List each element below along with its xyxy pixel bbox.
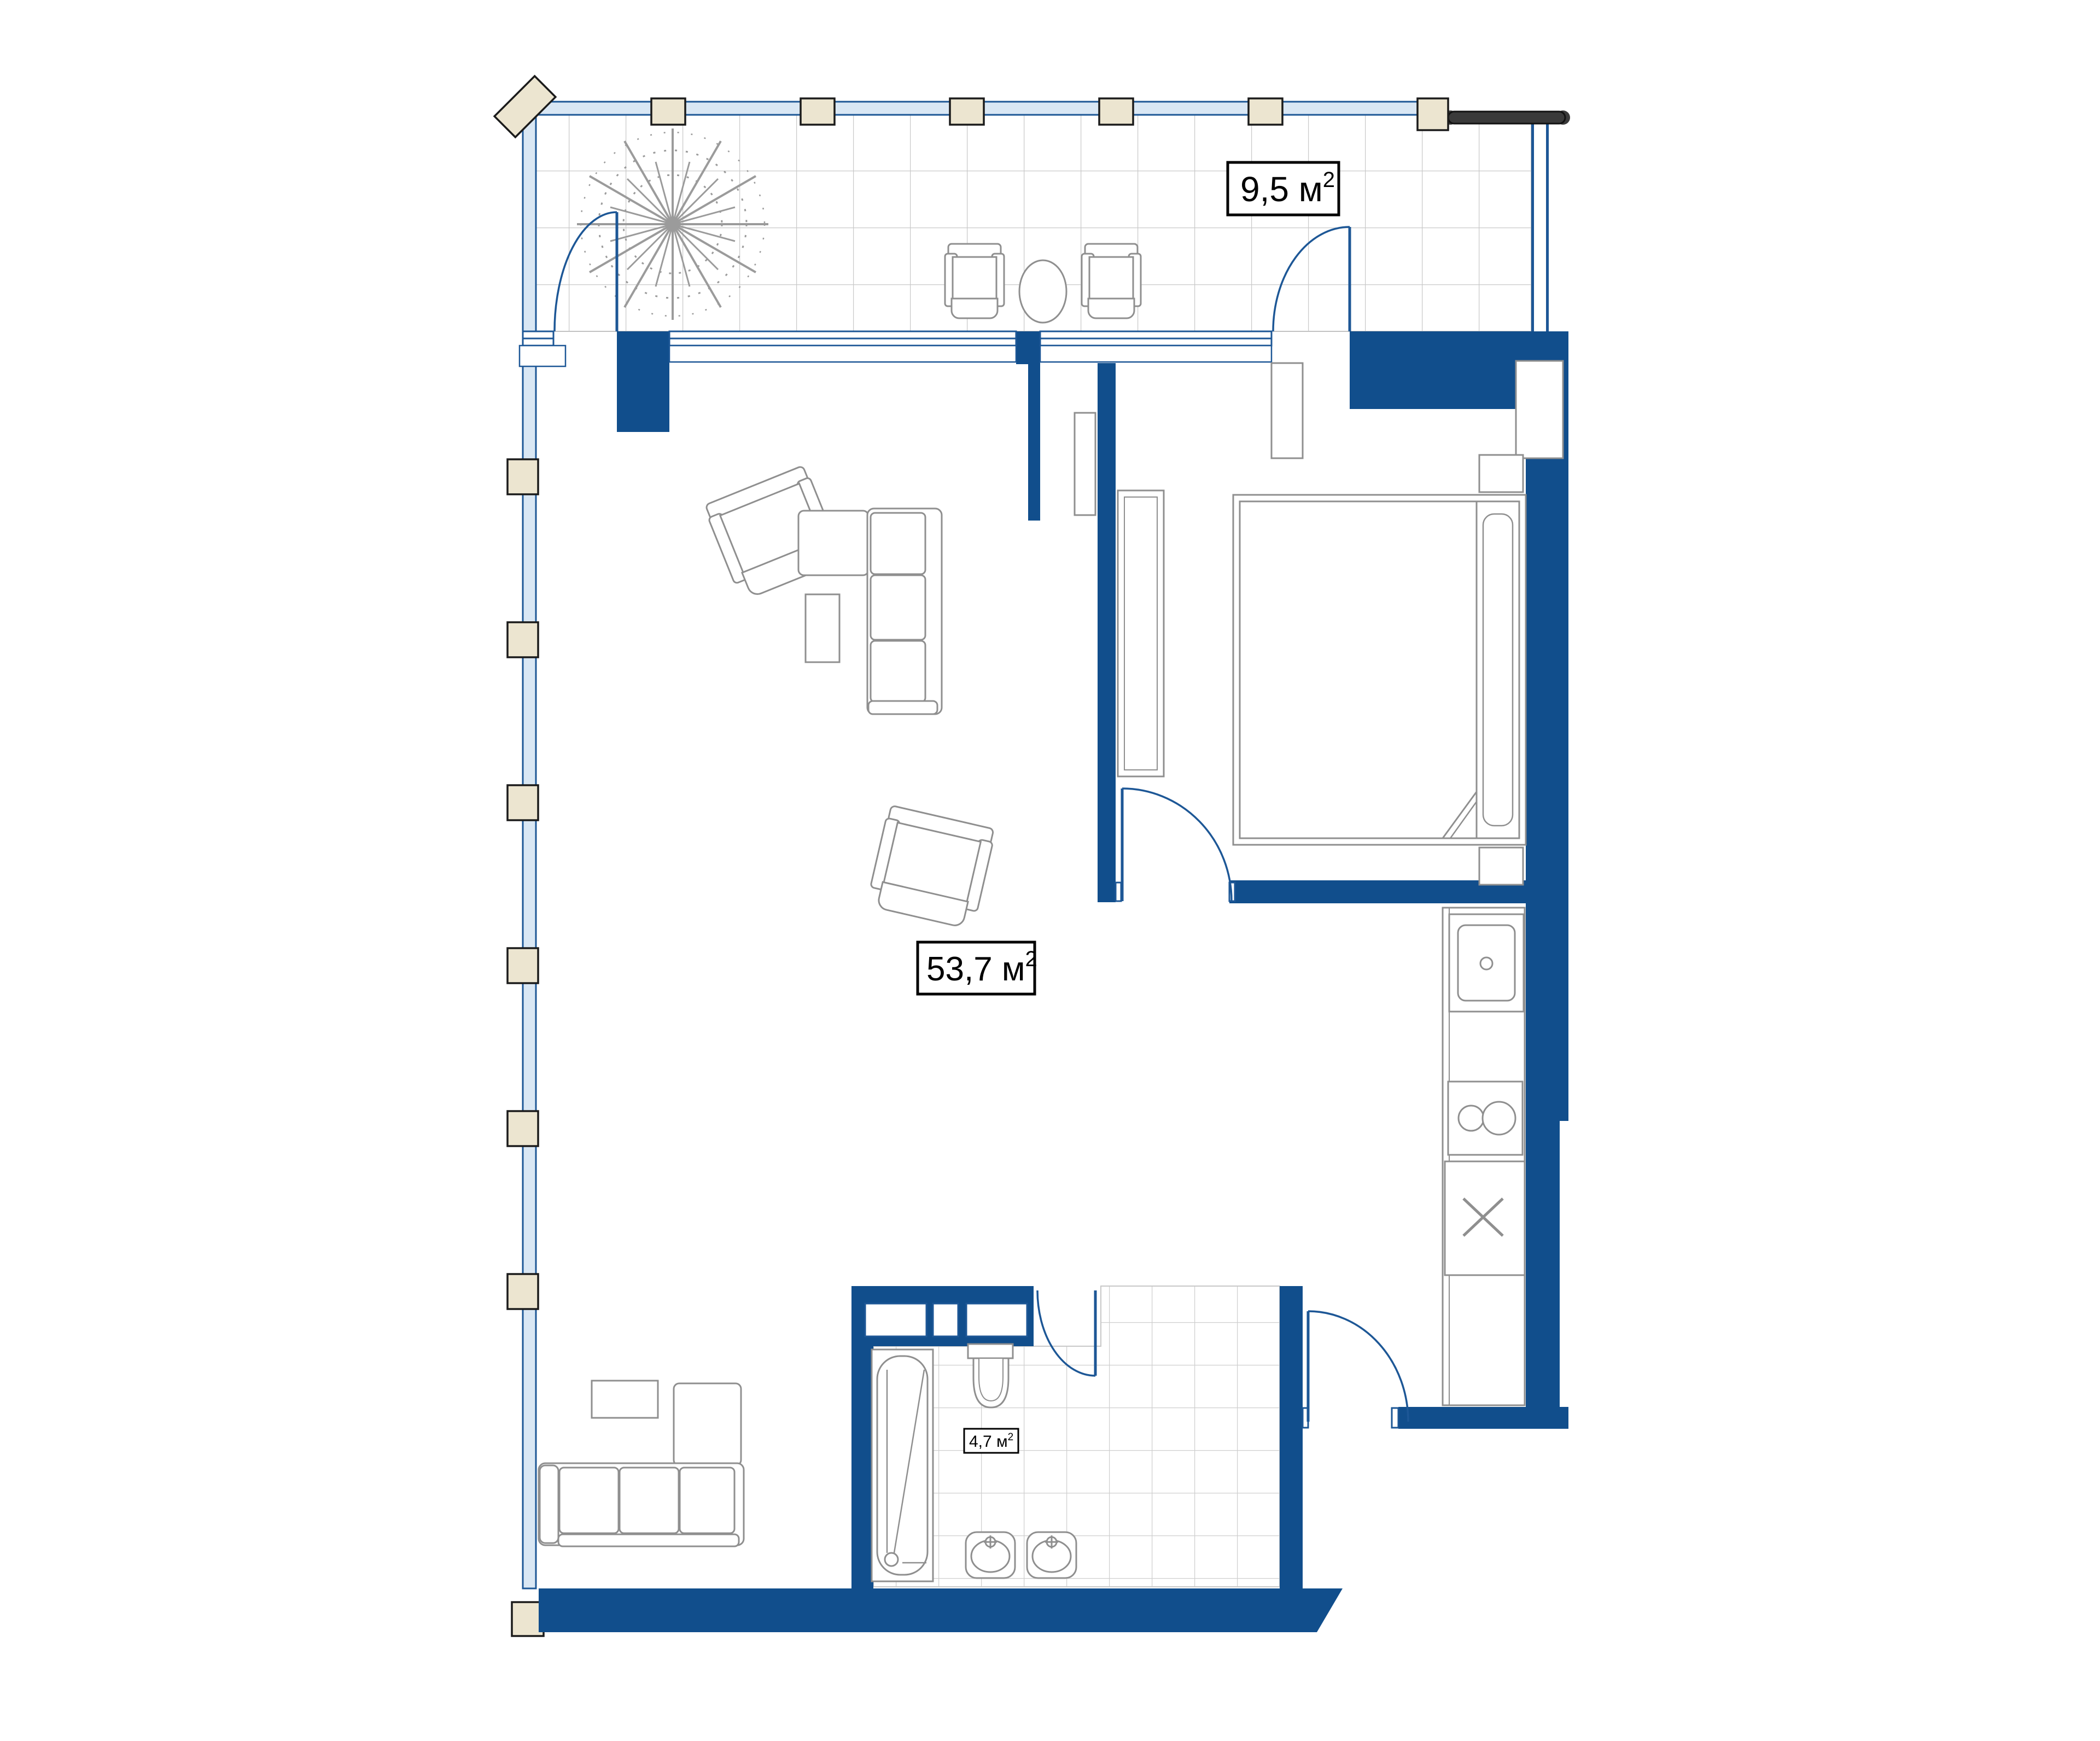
window-post-icon	[950, 98, 984, 125]
railing-bar	[1448, 112, 1565, 124]
window-post-icon	[1249, 98, 1282, 125]
terrace-edge-line	[1546, 122, 1549, 333]
window-board	[1040, 346, 1271, 362]
shaft-box	[865, 1304, 926, 1336]
wall-bottom	[539, 1588, 1343, 1632]
wardrobe-inner	[1124, 497, 1157, 770]
window-board	[669, 346, 1016, 362]
sofa-cushion	[680, 1468, 734, 1533]
entry-door-arc	[1308, 1311, 1408, 1422]
wall-right-upper	[1526, 409, 1568, 1121]
wall-partition	[1098, 363, 1116, 902]
coffee-table-icon	[806, 594, 839, 662]
bed-icon	[1233, 495, 1526, 845]
window-post-icon	[507, 1111, 538, 1146]
bathtub-drain	[885, 1553, 898, 1566]
nightstand-icon	[1479, 455, 1523, 492]
hob-burner-icon	[1483, 1102, 1515, 1135]
area-label-terrace: 9,5 м2	[1228, 162, 1339, 215]
wall-pier	[617, 331, 669, 432]
area-label-bathroom: 4,7 м2	[964, 1429, 1018, 1453]
bed-pillow	[1483, 514, 1513, 826]
sofa-chaise	[798, 511, 868, 575]
window-post-icon	[507, 1274, 538, 1309]
washbasin-icon	[1027, 1532, 1076, 1578]
tv-bench-icon	[1075, 413, 1095, 515]
window-post-icon	[801, 98, 835, 125]
terrace-edge-line	[1531, 122, 1534, 333]
label-text: 4,7 м2	[969, 1432, 1013, 1451]
wall-bathroom-right	[1280, 1286, 1303, 1588]
window-board	[520, 346, 565, 366]
sofa-cushion	[620, 1468, 679, 1533]
wall-pier-small	[1016, 331, 1040, 364]
wardrobe-icon	[1118, 490, 1164, 776]
sofa-cushion	[871, 575, 925, 640]
wall-entry	[1398, 1407, 1568, 1429]
shaft-box	[933, 1304, 958, 1336]
sofa-armrest	[540, 1465, 558, 1543]
sofa-cushion	[559, 1468, 619, 1533]
area-label-living: 53,7 м2	[918, 942, 1037, 994]
terrace-chair-icon	[1082, 244, 1141, 318]
label-text: 53,7 м2	[926, 947, 1037, 988]
closet-icon	[1271, 363, 1303, 458]
floor-plan-canvas: 9,5 м2 53,7 м2 4,7 м2	[0, 0, 2100, 1741]
sofa-cushion	[871, 641, 925, 702]
window-post-icon	[651, 98, 685, 125]
bedroom-door-arc	[1122, 788, 1232, 901]
sofa-chaise	[674, 1383, 741, 1465]
toilet-bowl-inner	[979, 1358, 1003, 1401]
window-post-icon	[507, 622, 538, 657]
wall-right-lower	[1526, 1121, 1560, 1429]
armchair-icon	[866, 805, 996, 930]
window-post-icon	[1099, 98, 1133, 125]
washbasin-icon	[966, 1532, 1015, 1578]
sofa-armrest	[868, 701, 937, 714]
label-text: 9,5 м2	[1240, 168, 1335, 209]
railing	[1443, 110, 1570, 125]
terrace-chair-icon	[945, 244, 1004, 318]
window-post-icon	[507, 785, 538, 820]
terrace-table-icon	[1019, 260, 1066, 323]
window-post-end-icon	[1417, 98, 1448, 130]
bedroom-door-jamb	[1116, 883, 1121, 901]
sofa-cushion	[871, 513, 925, 574]
entry-door-jamb	[1392, 1408, 1398, 1428]
bed-mattress	[1240, 501, 1477, 838]
sofa-back	[558, 1534, 739, 1546]
bathtub-inner	[877, 1356, 927, 1575]
nightstand-icon	[1479, 848, 1523, 885]
shaft-box	[966, 1304, 1027, 1336]
kitchen-sink-drain	[1480, 957, 1492, 969]
wall-pier-stem	[1028, 364, 1040, 521]
window-post-icon	[507, 948, 538, 983]
left-glass-wall	[523, 102, 536, 1588]
toilet-tank	[968, 1344, 1013, 1358]
coffee-table-icon	[592, 1381, 658, 1418]
bedroom-corner-niche	[1516, 361, 1563, 458]
bathtub-icon	[872, 1349, 933, 1581]
hob-burner-icon	[1459, 1106, 1484, 1131]
terrace-right-edge	[1531, 122, 1549, 333]
kitchen	[1443, 908, 1525, 1405]
window-post-icon	[507, 459, 538, 494]
